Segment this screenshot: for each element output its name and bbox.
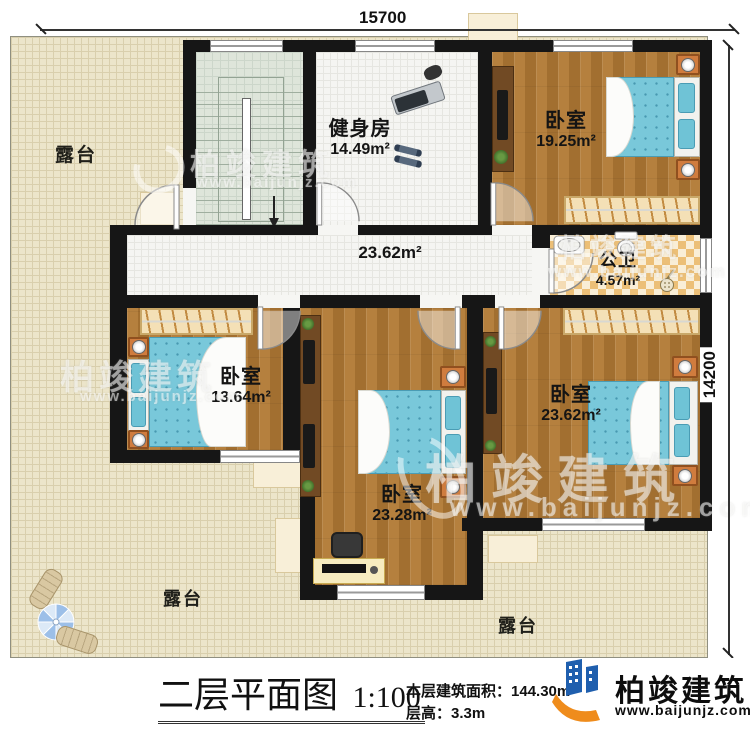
terrace-label: 露台 <box>498 612 538 638</box>
pillow <box>678 119 695 149</box>
wardrobe-icon <box>140 308 253 335</box>
desk-monitor-icon <box>303 424 315 468</box>
pillow <box>445 396 461 430</box>
door-arc-icon <box>256 306 302 350</box>
plan-title-group: 二层平面图 1:100 <box>158 666 425 724</box>
nightstand-lamp-icon <box>440 366 466 388</box>
brand-logo-icon <box>552 658 612 724</box>
desk-monitor-icon <box>303 340 315 384</box>
window <box>337 585 425 600</box>
dumbbell-icon <box>394 144 424 170</box>
pillow <box>674 387 690 420</box>
nightstand-lamp-icon <box>676 54 700 75</box>
dimension-line-top <box>40 29 735 31</box>
floor-plan: 健身房 14.49m² 卧室 19.25m² 公卫 4.57m² 23.62m²… <box>0 0 750 730</box>
door-arc-icon <box>497 306 543 350</box>
door-arc-icon <box>490 181 534 227</box>
wall <box>425 585 483 600</box>
room-label-gym: 健身房 14.49m² <box>329 112 392 159</box>
room-label-bedroom-top-right: 卧室 19.25m² <box>536 104 596 151</box>
wardrobe-icon <box>563 308 700 335</box>
window-sill <box>468 13 518 41</box>
room-name: 健身房 <box>329 112 392 141</box>
dimension-right: 14200 <box>700 347 720 402</box>
floor-height-label: 层高： <box>406 705 451 722</box>
terrace-label: 露台 <box>55 140 97 167</box>
plant-icon <box>302 318 314 330</box>
plant-icon <box>485 336 496 347</box>
watermark: www.baijunjz.com <box>80 388 241 405</box>
wall <box>110 235 127 463</box>
wardrobe-icon <box>564 196 700 224</box>
room-name: 卧室 <box>541 378 601 407</box>
room-label-bedroom-bottom-right: 卧室 23.62m² <box>541 378 601 425</box>
wall <box>532 233 550 248</box>
plant-icon <box>302 480 314 492</box>
desk-monitor-icon <box>486 368 497 414</box>
tv-icon <box>322 564 366 573</box>
wall <box>110 450 220 463</box>
window <box>355 40 435 52</box>
brand-url: www.baijunjz.com <box>615 702 750 718</box>
room-name: 卧室 <box>211 360 271 389</box>
pillow <box>678 83 695 113</box>
wall <box>303 52 316 225</box>
nightstand-lamp-icon <box>128 430 149 449</box>
stairs-direction-arrow <box>273 196 275 220</box>
nightstand-lamp-icon <box>672 356 698 378</box>
wall <box>462 295 495 308</box>
office-chair-icon <box>331 532 363 558</box>
building-area-label: 本层建筑面积： <box>406 683 511 700</box>
title-block: 二层平面图 1:100 本层建筑面积：144.30m² 层高：3.3m 柏竣建筑… <box>0 658 750 730</box>
room-area: 23.62m² <box>358 243 421 263</box>
watermark: www.baijunjz.com <box>450 492 750 523</box>
dimension-top: 15700 <box>354 8 411 28</box>
watermark: www.baijunjz.com <box>548 262 727 282</box>
floor-height-line: 层高：3.3m <box>406 702 485 723</box>
wall <box>700 52 712 238</box>
watermark: 柏竣建筑 <box>560 228 680 265</box>
door-arc-icon <box>416 306 462 350</box>
plan-title: 二层平面图 <box>158 675 338 715</box>
wall <box>540 295 712 308</box>
room-label-corridor: 23.62m² <box>358 243 421 263</box>
window-sill <box>488 535 538 563</box>
room-area: 19.25m² <box>536 133 596 151</box>
wall <box>300 585 337 600</box>
window <box>220 450 300 463</box>
building-area-line: 本层建筑面积：144.30m² <box>406 680 575 701</box>
corridor-floor <box>127 235 532 295</box>
wall <box>358 225 492 235</box>
terrace-label: 露台 <box>163 585 203 611</box>
nightstand-lamp-icon <box>676 159 700 180</box>
window <box>553 40 633 52</box>
tv-stand-knob <box>370 566 378 574</box>
dimension-line-right <box>728 45 730 655</box>
room-area: 23.62m² <box>541 407 601 425</box>
plant-icon <box>494 150 508 164</box>
desk-monitor-icon <box>497 90 508 140</box>
window <box>210 40 283 52</box>
wall <box>300 295 420 308</box>
room-name: 卧室 <box>536 104 596 133</box>
room-area: 14.49m² <box>329 141 392 159</box>
floor-height-value: 3.3m <box>451 705 485 722</box>
watermark: www.baijunjz.com <box>196 174 357 191</box>
wall <box>110 295 258 308</box>
